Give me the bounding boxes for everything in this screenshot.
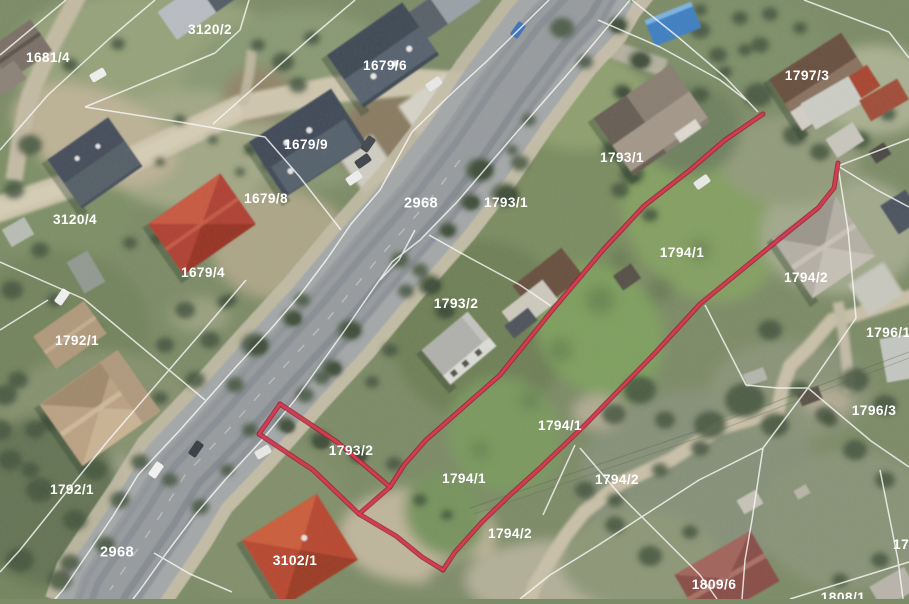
svg-text:1809/6: 1809/6 <box>692 577 737 592</box>
svg-text:3120/4: 3120/4 <box>53 212 97 227</box>
svg-text:1679/8: 1679/8 <box>244 191 288 206</box>
svg-text:1808/1: 1808/1 <box>821 590 866 599</box>
svg-text:1792/1: 1792/1 <box>50 482 94 497</box>
svg-text:1679/9: 1679/9 <box>284 137 328 152</box>
svg-text:1794/1: 1794/1 <box>660 245 705 260</box>
svg-text:1794/1: 1794/1 <box>538 418 582 433</box>
svg-text:2968: 2968 <box>100 544 134 560</box>
svg-text:1679/6: 1679/6 <box>363 58 407 73</box>
svg-text:3102/1: 3102/1 <box>273 553 318 568</box>
svg-text:1796/3: 1796/3 <box>852 403 897 418</box>
svg-text:2968: 2968 <box>404 195 438 211</box>
svg-text:1796: 1796 <box>893 537 909 552</box>
svg-text:1793/1: 1793/1 <box>484 195 528 210</box>
svg-text:1794/2: 1794/2 <box>784 270 828 285</box>
svg-text:3120/2: 3120/2 <box>188 22 232 37</box>
svg-text:1794/1: 1794/1 <box>442 471 486 486</box>
svg-text:1679/4: 1679/4 <box>181 265 225 280</box>
svg-text:1681/4: 1681/4 <box>26 50 70 65</box>
svg-text:1792/1: 1792/1 <box>55 333 99 348</box>
svg-text:1794/2: 1794/2 <box>488 526 532 541</box>
svg-text:1793/2: 1793/2 <box>329 443 374 458</box>
svg-text:1793/1: 1793/1 <box>600 150 644 165</box>
svg-text:1793/2: 1793/2 <box>434 296 479 311</box>
svg-text:1796/1: 1796/1 <box>866 325 909 340</box>
svg-text:1794/2: 1794/2 <box>595 472 639 487</box>
svg-text:1797/3: 1797/3 <box>785 68 830 83</box>
